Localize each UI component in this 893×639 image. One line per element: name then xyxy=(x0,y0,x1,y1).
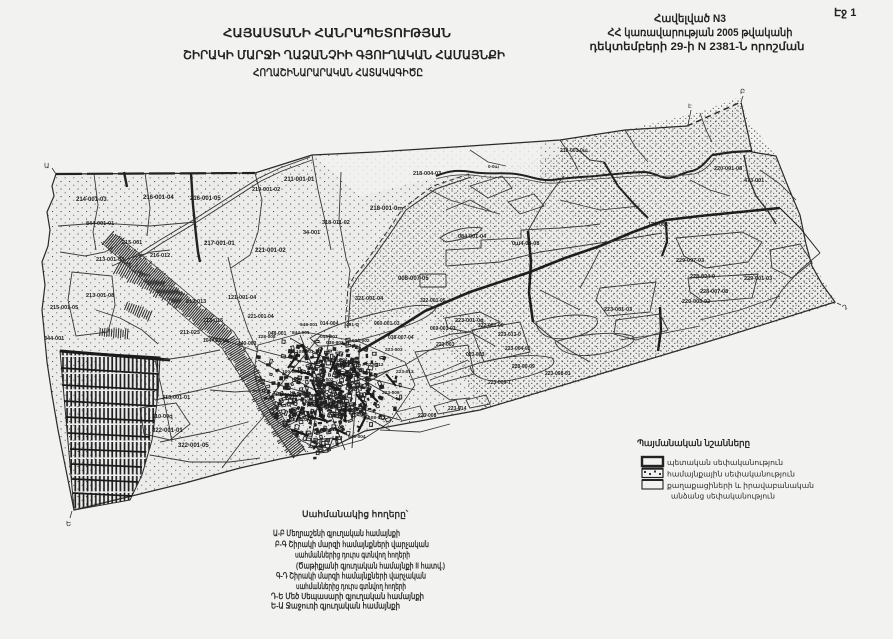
svg-text:006-029: 006-029 xyxy=(305,399,323,405)
svg-text:Պայմանական նշանները: Պայմանական նշանները xyxy=(637,438,750,449)
svg-text:քաղաքացիների և իրավաբանական: քաղաքացիների և իրավաբանական xyxy=(667,481,814,490)
svg-text:228-007-08: 228-007-08 xyxy=(700,289,728,295)
svg-text:104-001-0զ: 104-001-0զ xyxy=(203,338,230,344)
svg-text:344-001: 344-001 xyxy=(44,336,64,342)
svg-text:անձանց սեփականություն: անձանց սեփականություն xyxy=(671,492,775,501)
svg-text:223-009-1: 223-009-1 xyxy=(488,380,511,386)
svg-text:223-003: 223-003 xyxy=(436,342,455,348)
svg-text:046-001: 046-001 xyxy=(320,334,338,340)
svg-text:սահմաններից դուրս գտնվող հողե: սահմաններից դուրս գտնվող հողերի xyxy=(295,549,410,561)
svg-text:108-001: 108-001 xyxy=(296,349,314,355)
svg-text:219-001-02: 219-001-02 xyxy=(252,187,280,193)
svg-text:046-004: 046-004 xyxy=(330,357,348,363)
svg-text:322-001-01: 322-001-01 xyxy=(152,428,183,434)
svg-text:211-001-01: 211-001-01 xyxy=(284,177,315,183)
svg-text:223-004-02: 223-004-02 xyxy=(505,346,531,352)
svg-text:223-003: 223-003 xyxy=(385,347,403,353)
svg-text:223-013-0: 223-013-0 xyxy=(498,332,521,338)
svg-text:473-001: 473-001 xyxy=(744,178,764,184)
svg-text:220-001-08: 220-001-08 xyxy=(714,166,742,172)
svg-text:946-001: 946-001 xyxy=(300,322,318,328)
svg-text:173-001: 173-001 xyxy=(648,222,668,228)
svg-text:121-001-04: 121-001-04 xyxy=(228,295,257,301)
svg-text:213-001-03: 213-001-03 xyxy=(96,257,124,263)
svg-text:34-001: 34-001 xyxy=(303,230,320,236)
svg-text:229-001-03: 229-001-03 xyxy=(744,276,772,282)
svg-text:038-003: 038-003 xyxy=(326,340,344,346)
svg-text:223-008: 223-008 xyxy=(418,413,437,419)
svg-text:348-001: 348-001 xyxy=(272,392,290,398)
svg-text:321-001-04: 321-001-04 xyxy=(355,296,384,302)
svg-text:Բ: Բ xyxy=(740,88,745,96)
svg-text:217-001-01: 217-001-01 xyxy=(204,241,235,247)
svg-text:023-003: 023-003 xyxy=(466,352,485,358)
svg-text:223-007: 223-007 xyxy=(340,407,358,413)
svg-text:համայնքային սեփականություն: համայնքային սեփականություն xyxy=(667,470,795,479)
svg-text:0-0ա: 0-0ա xyxy=(488,164,500,169)
svg-text:322-001-06: 322-001-06 xyxy=(478,323,504,329)
svg-text:023-012: 023-012 xyxy=(366,362,384,368)
svg-text:140-003: 140-003 xyxy=(238,341,257,347)
svg-text:048-001: 048-001 xyxy=(268,331,287,337)
svg-text:313-001-01: 313-001-01 xyxy=(162,395,190,401)
svg-text:223-013: 223-013 xyxy=(396,369,414,375)
svg-text:948-002: 948-002 xyxy=(316,377,334,383)
svg-text:228-004-0: 228-004-0 xyxy=(690,274,715,280)
svg-text:0ա4-03-08: 0ա4-03-08 xyxy=(512,241,539,247)
svg-text:028-002: 028-002 xyxy=(352,338,370,344)
svg-text:100-001: 100-001 xyxy=(282,369,300,375)
svg-text:223-009: 223-009 xyxy=(382,390,400,396)
svg-text:Դ: Դ xyxy=(842,304,848,312)
svg-text:214-001-03: 214-001-03 xyxy=(76,197,107,203)
svg-text:Ա: Ա xyxy=(44,162,49,170)
svg-text:Գ-Դ Շիրակի մարզի համայնքների վ: Գ-Դ Շիրակի մարզի համայնքների վարչական xyxy=(276,570,426,582)
svg-text:213-015: 213-015 xyxy=(203,318,223,324)
svg-text:223-014: 223-014 xyxy=(448,406,467,412)
svg-text:060-001-03: 060-001-03 xyxy=(374,321,400,327)
svg-text:218-001-0ՠ: 218-001-0ՠ xyxy=(370,206,403,212)
svg-text:028-029: 028-029 xyxy=(350,385,368,391)
svg-text:229-097-03: 229-097-03 xyxy=(676,258,704,264)
svg-text:218-001-0ա: 218-001-0ա xyxy=(560,148,588,154)
svg-text:228-00-09: 228-00-09 xyxy=(512,364,535,370)
svg-text:318-011-02: 318-011-02 xyxy=(322,220,350,226)
svg-text:Ե-Ա Ջաջուռի գյուղական համայնքի: Ե-Ա Ջաջուռի գյուղական համայնքի xyxy=(271,600,400,612)
svg-text:014-004: 014-004 xyxy=(320,321,339,327)
svg-text:008-007-05: 008-007-05 xyxy=(398,276,429,282)
svg-text:038-007-04: 038-007-04 xyxy=(388,335,414,341)
svg-text:322-001-05: 322-001-05 xyxy=(178,443,209,449)
svg-text:215-001-05: 215-001-05 xyxy=(50,305,78,311)
svg-text:323-002: 323-002 xyxy=(290,417,308,423)
svg-text:844-001-01: 844-001-01 xyxy=(86,221,114,227)
svg-text:223-008-01: 223-008-01 xyxy=(545,371,571,377)
svg-text:Բ-Գ Շիրակի մարզի համայնքների վ: Բ-Գ Շիրակի մարզի համայնքների վարչական xyxy=(275,538,429,550)
svg-text:223-001-03: 223-001-03 xyxy=(604,307,632,313)
svg-text:048-004: 048-004 xyxy=(348,434,366,440)
svg-text:215-001: 215-001 xyxy=(122,240,142,246)
svg-text:Ե: Ե xyxy=(66,520,71,528)
svg-text:108-013: 108-013 xyxy=(368,415,386,421)
svg-text:Ա-Բ Մեղրաշենի գյուղական համայ: Ա-Բ Մեղրաշենի գյուղական համայնքի xyxy=(273,527,400,539)
svg-text:216-001-05: 216-001-05 xyxy=(190,196,221,202)
svg-text:221-001-04: 221-001-04 xyxy=(248,314,274,320)
svg-text:216-012: 216-012 xyxy=(150,253,170,259)
svg-text:212-013: 212-013 xyxy=(186,299,206,305)
svg-text:084-001-04: 084-001-04 xyxy=(458,234,487,240)
svg-text:310-00զ: 310-00զ xyxy=(152,414,174,420)
svg-text:844-001: 844-001 xyxy=(292,330,310,336)
svg-text:220-003-02: 220-003-02 xyxy=(682,299,710,305)
svg-text:221-001-02: 221-001-02 xyxy=(255,248,286,254)
svg-text:223-012: 223-012 xyxy=(320,427,338,433)
svg-text:պետական սեփականություն: պետական սեփականություն xyxy=(667,458,783,467)
svg-text:223-016: 223-016 xyxy=(308,444,326,450)
svg-text:211-023: 211-023 xyxy=(180,330,200,336)
svg-text:Է: Է xyxy=(688,103,692,110)
svg-text:216-001-04: 216-001-04 xyxy=(143,195,174,201)
svg-text:213-001-08: 213-001-08 xyxy=(86,293,114,299)
svg-text:218-004-03: 218-004-03 xyxy=(413,171,441,177)
svg-text:322-001-05: 322-001-05 xyxy=(420,298,446,304)
svg-text:069-001-03: 069-001-03 xyxy=(430,326,456,332)
svg-text:401-զ: 401-զ xyxy=(346,322,360,328)
